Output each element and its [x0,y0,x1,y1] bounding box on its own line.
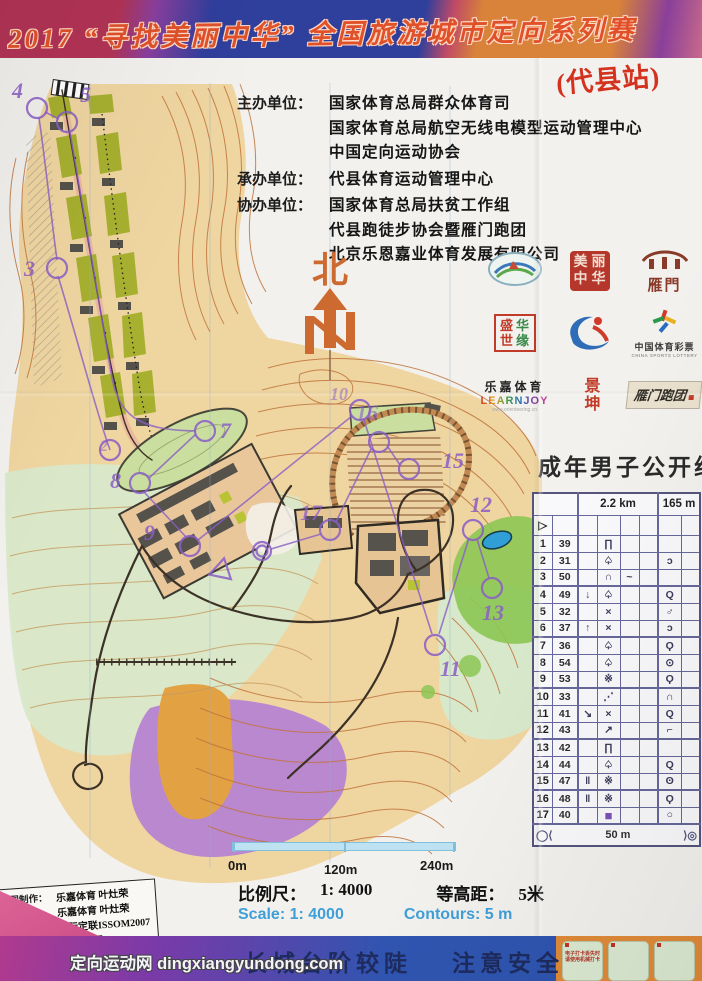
symbol-d: ∩ [597,569,620,586]
logo-char: 世 [499,333,515,348]
symbol-e [620,688,639,705]
symbol-e [620,722,639,739]
scale-bar [232,842,456,851]
lottery-en-text: CHINA SPORTS LOTTERY [632,353,698,358]
control-code: 32 [552,603,578,620]
control-code: 33 [552,688,578,705]
organizer-line: 国家体育总局航空无线电模型运动管理中心 [329,117,643,142]
symbol-e [620,552,639,569]
symbol-f [639,603,658,620]
finish-route-right-icon: ⟩◎ [683,829,697,842]
symbol-c: ‖ [578,790,597,807]
symbol-g: ∩ [658,688,681,705]
north-character: 北 [294,252,366,288]
symbol-d: ■ [597,807,620,824]
symbol-c: ↑ [578,620,597,637]
symbol-c [578,535,597,552]
north-arrow-icon [297,288,363,380]
table-header-row: 2.2 km 165 m [533,493,700,515]
symbol-d: × [597,705,620,722]
symbol-c [578,739,597,756]
control-row: 11 41 ↘ × Q [533,705,700,722]
control-code: 43 [552,722,578,739]
control-code: 50 [552,569,578,586]
symbol-h [681,722,700,739]
control-row: 7 36 ♤ Ϙ [533,637,700,654]
symbol-c [578,688,597,705]
symbol-d: ※ [597,773,620,790]
orange-area [157,684,234,819]
symbol-c [578,671,597,688]
symbol-f [639,739,658,756]
scale-text-cn: 比例尺： 1: 4000 等高距： 5米 [238,880,544,905]
symbol-g: Q [658,705,681,722]
event-title: 2017 “寻找美丽中华” 全国旅游城市定向系列赛 [8,7,700,56]
control-code: 54 [552,654,578,671]
symbol-e [620,603,639,620]
footer-cards-area: 电子打卡丢失时 请使用机械打卡 [556,936,702,981]
symbol-f [639,688,658,705]
symbol-f [639,722,658,739]
symbol-c [578,552,597,569]
logo-char: 华 [515,318,531,333]
paper-crease [0,390,702,397]
control-row: 14 44 ♤ Q [533,756,700,773]
symbol-c [578,654,597,671]
symbol-c [578,637,597,654]
symbol-g: ɔ [658,552,681,569]
symbol-f [639,586,658,603]
symbol-e [620,586,639,603]
north-arrow: 北 [294,252,366,384]
control-row: 5 32 × ♂ [533,603,700,620]
symbol-h [681,569,700,586]
control-code: 44 [552,756,578,773]
control-description-table: 2.2 km 165 m ▷ 1 39 ∏ 2 31 [532,492,701,847]
symbol-c [578,756,597,773]
finish-distance: 50 m [605,829,630,841]
symbol-e [620,637,639,654]
scale-text-en: Scale: 1: 4000 Contours: 5 m [238,906,512,924]
symbol-h [681,637,700,654]
vegetation-patch [459,655,481,677]
symbol-d: ※ [597,790,620,807]
symbol-g: ʘ [658,773,681,790]
symbol-f [639,705,658,722]
symbol-e [620,705,639,722]
control-row: 4 49 ↓ ♤ Q [533,586,700,603]
symbol-g [658,535,681,552]
blank-card [654,941,695,981]
logo-char: 缘 [515,333,531,348]
symbol-d: ♤ [597,586,620,603]
symbol-h [681,603,700,620]
symbol-g: ɔ [658,620,681,637]
control-row: 10 33 ⋰ ∩ [533,688,700,705]
symbol-d: × [597,603,620,620]
control-code: 42 [552,739,578,756]
symbol-g: Q [658,586,681,603]
symbol-g: ⌐ [658,722,681,739]
symbol-h [681,688,700,705]
symbol-h [681,552,700,569]
symbol-f [639,535,658,552]
seal-char: 中 [572,271,590,288]
symbol-h [681,773,700,790]
symbol-d: ♤ [597,552,620,569]
symbol-f [639,552,658,569]
organizer-line: 中国定向运动协会 [329,141,643,166]
course-climb: 165 m [658,493,700,515]
symbol-h [681,586,700,603]
scale-en: Scale: 1: 4000 [238,906,344,924]
symbol-h [681,705,700,722]
scale-tick-240: 240m [420,858,453,873]
yanmen-gate-logo: 雁門 [641,247,689,295]
host-lines: 国家体育总局群众体育司国家体育总局航空无线电模型运动管理中心中国定向运动协会 [329,92,643,166]
symbol-g: Ϙ [658,790,681,807]
undertaker-label: 承办单位： [237,168,329,193]
symbol-c: ↘ [578,705,597,722]
symbol-e [620,620,639,637]
symbol-g [658,569,681,586]
control-row: 9 53 ※ Ϙ [533,671,700,688]
control-row: 12 43 ↗ ⌐ [533,722,700,739]
control-row: 2 31 ♤ ɔ [533,552,700,569]
control-row: 16 48 ‖ ※ Ϙ [533,790,700,807]
control-code: 40 [552,807,578,824]
symbol-d: ⋰ [597,688,620,705]
map-photo: 2 3 4 5 7 8 9 10 11 12 13 15 16 17 2017 … [0,0,702,981]
symbol-h [681,739,700,756]
undertaker-lines: 代县体育运动管理中心 [329,168,494,193]
symbol-h [681,620,700,637]
seal-char: 美 [572,254,590,271]
control-row: 17 40 ■ ○ [533,807,700,824]
symbol-d: ♤ [597,756,620,773]
contour-en: Contours: 5 m [404,906,512,924]
symbol-f [639,671,658,688]
seal-char: 华 [590,271,608,288]
symbol-f [639,637,658,654]
scale-value-cn: 1: 4000 [320,880,372,905]
vegetation-patch [421,685,435,699]
shengshi-huayuan-logo: 盛 华 世 缘 [494,314,536,352]
symbol-h [681,654,700,671]
symbol-f [639,654,658,671]
control-row: 1 39 ∏ [533,535,700,552]
control-row: 6 37 ↑ × ɔ [533,620,700,637]
safety-text-2: 注意安全 [452,944,564,978]
control-code: 39 [552,535,578,552]
scale-tick-120: 120m [324,862,357,877]
symbol-g: ⊙ [658,654,681,671]
control-row: 3 50 ∩ ~ [533,569,700,586]
symbol-c [578,603,597,620]
symbol-h [681,535,700,552]
beautiful-china-seal-logo: 美 丽 中 华 [570,251,610,291]
organizer-line: 国家体育总局群众体育司 [329,92,643,117]
symbol-e [620,790,639,807]
symbol-d: × [597,620,620,637]
symbol-g [658,739,681,756]
symbol-d: ※ [597,671,620,688]
symbol-e [620,756,639,773]
symbol-g: Ϙ [658,637,681,654]
card-note-line2: 请使用机械打卡 [565,957,600,963]
seal-char: 丽 [590,254,608,271]
card-tag [565,943,569,947]
event-banner: 2017 “寻找美丽中华” 全国旅游城市定向系列赛 [0,0,702,58]
symbol-e [620,654,639,671]
scale-label-cn: 比例尺： [238,880,306,905]
organizer-line: 国家体育总局扶贫工作组 [329,194,560,219]
symbol-d: ♤ [597,637,620,654]
site-watermark: 定向运动网 dingxiangyundong.com [70,950,343,974]
contour-label-cn: 等高距： [436,880,504,905]
control-code: 36 [552,637,578,654]
symbol-g: Q [658,756,681,773]
symbol-f [639,620,658,637]
china-sports-lottery-logo: 中国体育彩票 CHINA SPORTS LOTTERY [632,309,698,358]
control-code: 47 [552,773,578,790]
fang-swoosh-logo [565,311,615,356]
host-label: 主办单位： [237,92,329,166]
punch-note-card: 电子打卡丢失时 请使用机械打卡 [562,941,603,981]
logo-char: 盛 [499,318,515,333]
course-group-title: 成年男子公开组 [538,448,702,482]
symbol-c [578,722,597,739]
paper-fold [533,58,544,936]
lottery-cn-text: 中国体育彩票 [632,340,698,353]
symbol-f [639,569,658,586]
symbol-e [620,807,639,824]
symbol-g: ♂ [658,603,681,620]
course-distance: 2.2 km [578,493,658,515]
symbol-c: ↓ [578,586,597,603]
control-code: 49 [552,586,578,603]
organizer-line: 代县体育运动管理中心 [329,168,494,193]
symbol-f [639,756,658,773]
symbol-h [681,756,700,773]
start-row: ▷ [533,515,700,535]
control-row: 15 47 ‖ ※ ʘ [533,773,700,790]
symbol-f [639,773,658,790]
symbol-f [639,790,658,807]
scale-tick-0: 0m [228,858,247,873]
symbol-h [681,790,700,807]
symbol-e [620,535,639,552]
symbol-f [639,807,658,824]
symbol-g: Ϙ [658,671,681,688]
control-code: 37 [552,620,578,637]
symbol-d: ∏ [597,535,620,552]
symbol-d: ∏ [597,739,620,756]
blank-card [608,941,649,981]
symbol-d: ♤ [597,654,620,671]
card-tag [611,943,615,947]
finish-row: ◯⟨ 50 m ⟩◎ [533,824,700,846]
control-code: 53 [552,671,578,688]
symbol-e [620,671,639,688]
symbol-g: ○ [658,807,681,824]
symbol-c: ‖ [578,773,597,790]
symbol-e [620,773,639,790]
north-compound [295,506,352,554]
symbol-c [578,569,597,586]
sponsor-logos: 美 丽 中 华 雁門 盛 华 世 缘 [477,240,702,426]
symbol-h [681,807,700,824]
card-tag [657,943,661,947]
control-code: 41 [552,705,578,722]
control-code: 48 [552,790,578,807]
control-row: 13 42 ∏ [533,739,700,756]
control-code: 31 [552,552,578,569]
symbol-h [681,671,700,688]
symbol-e: ~ [620,569,639,586]
control-row: 8 54 ♤ ⊙ [533,654,700,671]
symbol-e [620,739,639,756]
gate-text: 雁門 [641,274,689,295]
symbol-d: ↗ [597,722,620,739]
symbol-c [578,807,597,824]
